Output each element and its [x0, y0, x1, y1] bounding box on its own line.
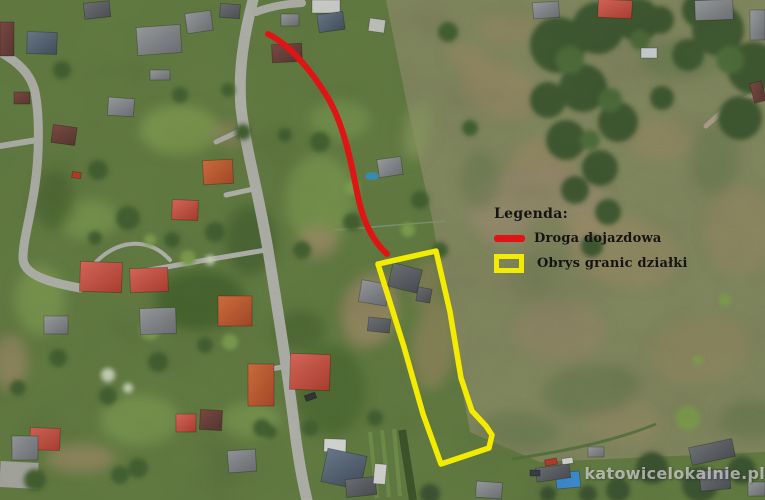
access-road-label: Droga dojazdowa: [534, 231, 661, 246]
legend-heading: Legenda:: [494, 206, 688, 222]
legend-item-plot-boundary: Obrys granic działki: [494, 254, 688, 273]
access-road-swatch-icon: [494, 235, 525, 242]
plot-boundary-swatch-icon: [494, 254, 524, 273]
aerial-map-screenshot: Legenda: Droga dojazdowa Obrys granic dz…: [0, 0, 765, 500]
watermark: katowicelokalnie.pl: [584, 464, 765, 483]
plot-boundary-label: Obrys granic działki: [537, 256, 688, 271]
legend-item-access-road: Droga dojazdowa: [494, 231, 688, 246]
legend: Legenda: Droga dojazdowa Obrys granic dz…: [494, 206, 688, 273]
